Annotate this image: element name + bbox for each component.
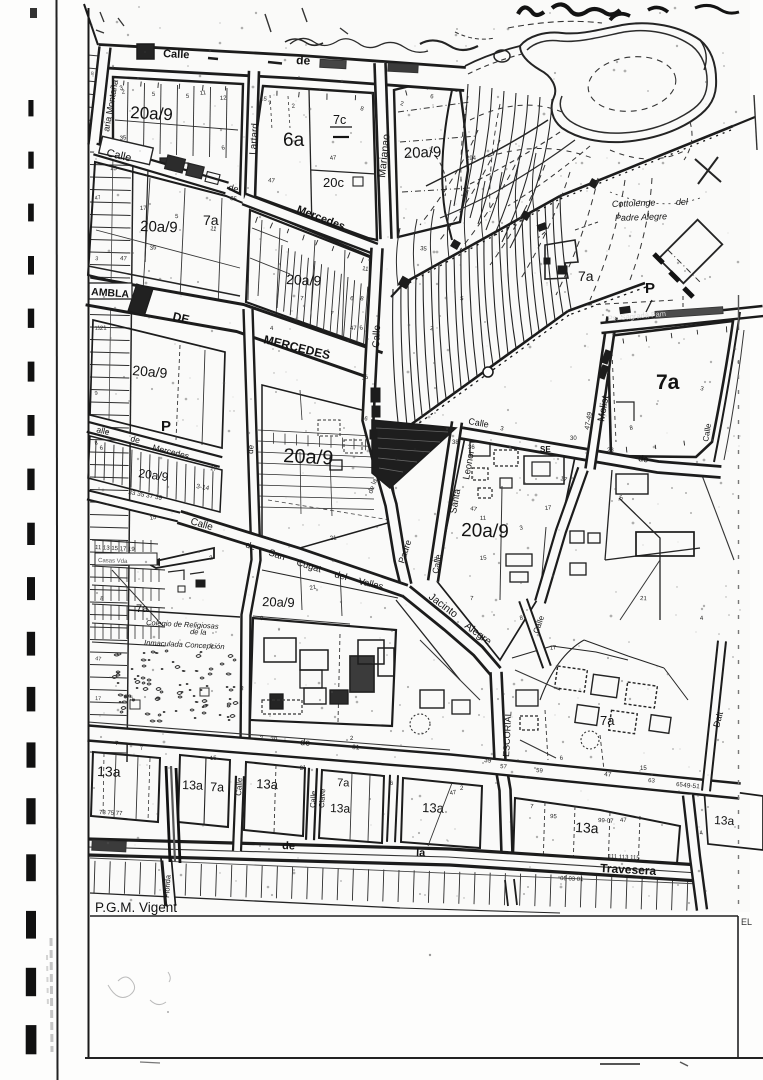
svg-text:EL: EL — [741, 917, 752, 927]
svg-text:15: 15 — [210, 756, 218, 762]
svg-text:21: 21 — [330, 535, 338, 542]
svg-text:21: 21 — [100, 325, 108, 331]
svg-text:15: 15 — [640, 766, 647, 772]
svg-text:21: 21 — [640, 596, 648, 602]
svg-text:47: 47 — [620, 818, 628, 824]
svg-text:15: 15 — [110, 166, 118, 172]
svg-text:11: 11 — [480, 516, 487, 522]
